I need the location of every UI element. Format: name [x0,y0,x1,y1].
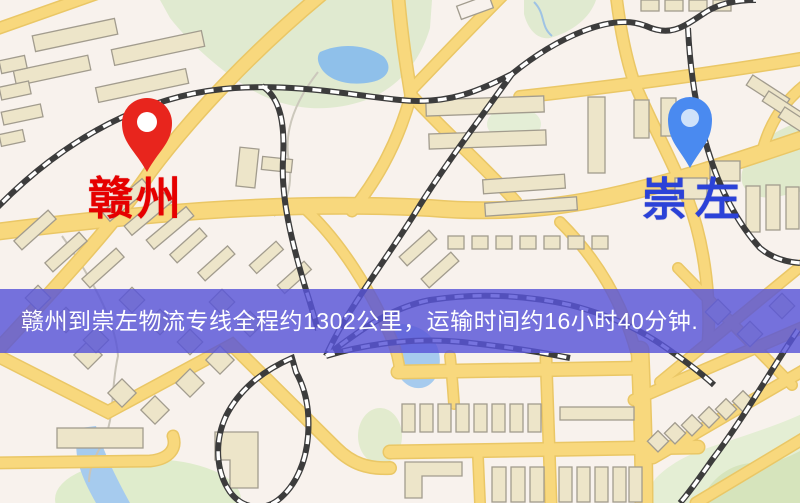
destination-city-label: 崇左 [642,177,748,222]
destination-pin-hole [681,109,699,127]
logistics-route-map: 赣州 崇左 赣州到崇左物流专线全程约1302公里，运输时间约16小时40分钟. [0,0,800,503]
route-info-banner: 赣州到崇左物流专线全程约1302公里，运输时间约16小时40分钟. [0,289,800,353]
map-canvas [0,0,800,503]
destination-pin-icon[interactable] [666,96,714,170]
destination-pin-shape[interactable] [668,97,712,168]
origin-pin-icon[interactable] [120,96,174,174]
route-info-text: 赣州到崇左物流专线全程约1302公里，运输时间约16小时40分钟. [0,289,800,353]
origin-pin-hole [137,112,157,132]
origin-city-label: 赣州 [88,176,184,221]
origin-pin-shape[interactable] [122,98,172,172]
